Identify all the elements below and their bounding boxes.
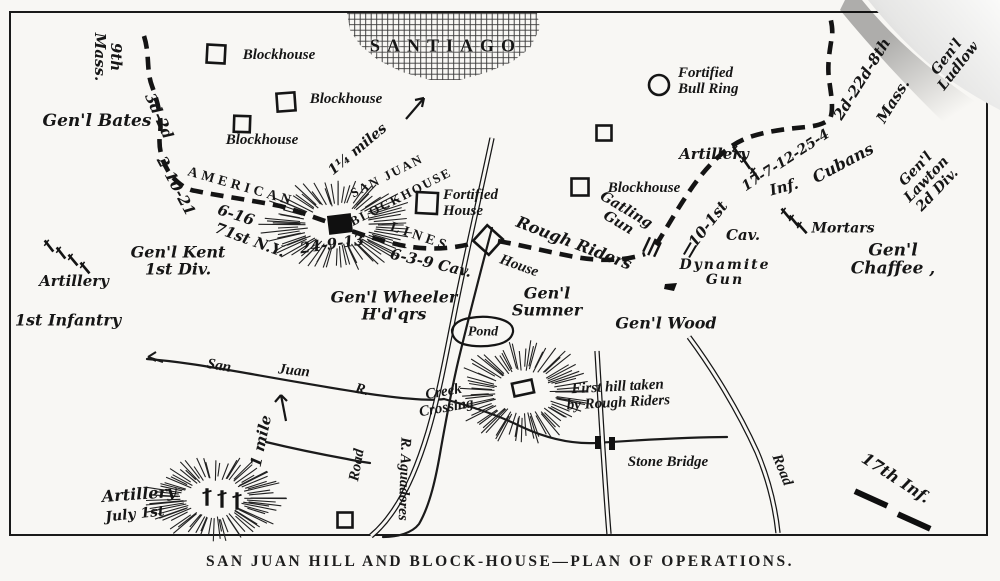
label-blockhouse-2: Blockhouse — [310, 91, 383, 107]
map-labels: SANTIAGO Blockhouse Blockhouse Blockhous… — [0, 0, 1000, 581]
label-1-mile: 1 mile — [248, 414, 275, 469]
label-24-9-13: 24-9-13 — [299, 231, 365, 256]
label-genl-bates: Gen'l Bates — [43, 112, 152, 130]
label-2-10-21: 2-10-21 — [154, 154, 199, 219]
label-artillery-july: Artillery — [101, 483, 176, 505]
label-fortified-bull-ring: Fortified Bull Ring — [678, 65, 738, 97]
label-blockhouse-1: Blockhouse — [243, 47, 316, 63]
label-genl-wheeler: Gen'l Wheeler H'd'qrs — [331, 289, 458, 324]
label-stone-bridge: Stone Bridge — [628, 454, 708, 470]
label-genl-chaffee: Gen'l Chaffee , — [840, 242, 947, 279]
label-9th-mass: 9th Mass. — [92, 33, 124, 81]
label-genl-kent: Gen'l Kent 1st Div. — [131, 244, 226, 279]
label-creek-crossing: Creek Crossing — [415, 379, 475, 420]
label-blockhouse-4: Blockhouse — [608, 180, 681, 196]
label-10-1st: 10-1st — [685, 198, 730, 250]
label-river-r: R. — [354, 381, 371, 400]
label-american: AMERICAN — [186, 165, 296, 210]
label-r-aguadores: R. Aguadores — [394, 437, 413, 521]
label-pond: Pond — [468, 324, 498, 339]
label-mass: Mass. — [873, 76, 912, 126]
label-mortars: Mortars — [811, 221, 874, 236]
label-genl-wood: Gen'l Wood — [615, 314, 716, 331]
label-artillery-left: Artillery — [39, 273, 109, 289]
label-fortified-house: Fortified House — [443, 187, 498, 219]
label-blockhouse-3: Blockhouse — [226, 132, 299, 148]
label-genl-lawton: Gen'l Lawton 2d Div. — [891, 144, 963, 216]
label-1st-infantry: 1st Infantry — [15, 311, 121, 328]
label-house: House — [497, 252, 540, 281]
map-print: SANTIAGO Blockhouse Blockhouse Blockhous… — [0, 0, 1000, 581]
label-juan: Juan — [277, 361, 310, 380]
label-genl-sumner: Gen'l Sumner — [512, 285, 582, 320]
label-san: San — [206, 356, 233, 376]
label-santiago: SANTIAGO — [370, 36, 522, 55]
label-road-central: Road — [346, 448, 368, 483]
label-17th-inf: 17th Inf. — [859, 450, 934, 507]
label-genl-ludlow: Gen'l Ludlow — [924, 30, 983, 93]
label-dynamite-gun: Dynamite Gun — [679, 258, 770, 288]
label-road-right: Road — [768, 452, 795, 488]
map-caption: SAN JUAN HILL AND BLOCK-HOUSE—PLAN OF OP… — [0, 553, 1000, 571]
label-6-3-9-cav: 6-3-9 Cav. — [389, 246, 474, 280]
label-july-1st: July 1st — [105, 504, 165, 525]
label-cav: Cav. — [726, 227, 760, 243]
label-inf-right: Inf. — [768, 175, 800, 198]
label-artillery-right: Artillery — [679, 146, 749, 162]
label-gatling-gun: Gatling Gun — [589, 189, 654, 245]
label-first-hill-taken: First hill taken by Rough Riders — [566, 376, 671, 414]
